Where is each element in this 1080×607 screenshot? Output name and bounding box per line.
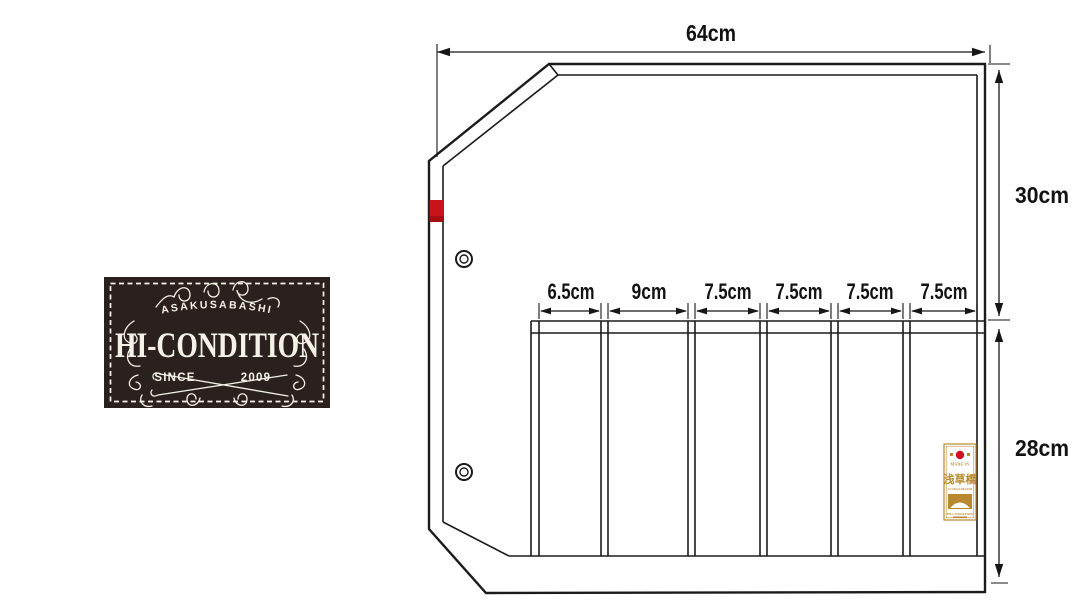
page: 64cm 30cm 28cm 6.5cm bbox=[0, 0, 1080, 607]
tag-made-in-label: MADE IN bbox=[951, 463, 970, 467]
snap-button-inner bbox=[460, 255, 468, 263]
tag-brand-label: HI-CONDITION bbox=[947, 512, 974, 516]
tag-red-sun-icon bbox=[956, 451, 964, 459]
width-dimension-label: 64cm bbox=[686, 20, 736, 46]
tag-kanji-label: 浅草橋 bbox=[944, 472, 978, 486]
pocket-width-label: 7.5cm bbox=[776, 279, 823, 304]
upper-height-dimension-label: 30cm bbox=[1015, 182, 1069, 208]
tag-mark-right bbox=[967, 453, 970, 456]
tag-fineprint-line bbox=[953, 517, 967, 518]
pocket-width-label: 7.5cm bbox=[921, 279, 968, 304]
dimension-lower-height-28cm: 28cm bbox=[991, 329, 1069, 583]
red-loop-tab-shadow bbox=[430, 216, 445, 222]
tag-location-label: ASAKUSABASHI bbox=[948, 488, 972, 491]
badge-since-text: SINCE bbox=[154, 372, 195, 384]
arrowhead-down-icon bbox=[995, 564, 1003, 577]
pocket-width-label: 7.5cm bbox=[705, 279, 752, 304]
badge-year-text: 2009 bbox=[241, 372, 271, 384]
pocket-width-label: 9cm bbox=[632, 279, 667, 304]
arrowhead-up-icon bbox=[995, 329, 1003, 342]
pocket-width-label: 6.5cm bbox=[548, 279, 595, 304]
arrowhead-right-icon bbox=[972, 48, 985, 56]
gold-product-tag: MADE IN 浅草橋 ASAKUSABASHI HI-CONDITION bbox=[944, 444, 978, 520]
roll-body-outline bbox=[429, 64, 985, 593]
arrowhead-left-icon bbox=[437, 48, 450, 56]
pocket-width-label: 7.5cm bbox=[847, 279, 894, 304]
tag-mark-left bbox=[950, 453, 953, 456]
dimension-upper-height-30cm: 30cm bbox=[988, 64, 1069, 320]
badge-brand-text: HI-CONDITION bbox=[115, 325, 319, 365]
arrowhead-up-icon bbox=[995, 70, 1003, 83]
arrowhead-down-icon bbox=[995, 303, 1003, 316]
lower-height-dimension-label: 28cm bbox=[1015, 435, 1069, 461]
snap-button-inner bbox=[460, 468, 468, 476]
brand-badge: ASAKUSABASHI HI-CONDITION SINCE 2009 bbox=[104, 277, 330, 408]
